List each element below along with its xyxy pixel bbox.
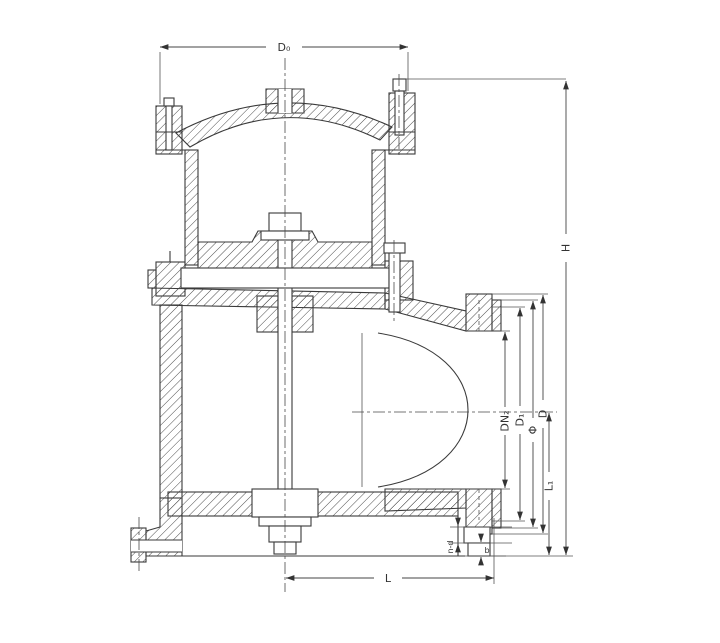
- dim-label-overall-height: H: [560, 244, 573, 252]
- dim-label-top-width: D₀: [278, 41, 291, 54]
- dim-label-bolt-circle: D₁: [514, 414, 527, 427]
- flange-step-detail: [464, 527, 490, 543]
- cap-bolt-left: [164, 98, 174, 106]
- valve-disc-arc: [378, 333, 468, 487]
- dim-label-bolt-holes: n-d: [446, 540, 455, 553]
- valve-technical-drawing-page: D₀ H L₁ D Φ D₁ DN₂ L b n-d: [0, 0, 720, 643]
- dim-label-length: L: [385, 572, 392, 585]
- dim-label-nominal-bore: DN₂: [499, 410, 512, 431]
- dim-label-flange-thickness: b: [484, 546, 489, 555]
- dim-label-raised-face: Φ: [527, 425, 540, 434]
- cap-bolt-right: [393, 79, 406, 91]
- dim-label-flange-od: D: [537, 410, 550, 418]
- valve-cross-section-drawing: D₀ H L₁ D Φ D₁ DN₂ L b n-d: [0, 0, 720, 643]
- dim-label-center-height: L₁: [543, 481, 556, 492]
- bonnet-bolt: [389, 250, 400, 312]
